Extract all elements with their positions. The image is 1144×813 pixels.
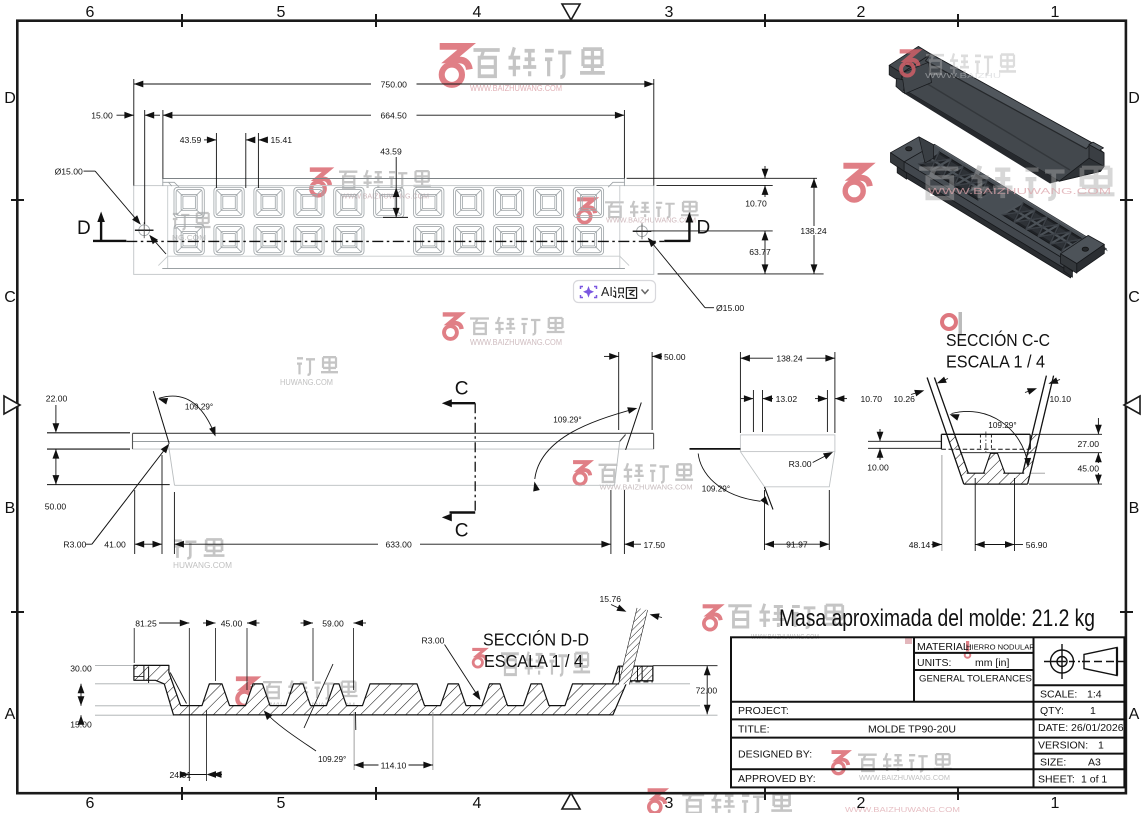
svg-text:Masa aproximada del molde: 21.: Masa aproximada del molde: 21.2 kg [779,605,1095,632]
svg-text:A: A [1129,706,1140,723]
svg-text:15.76: 15.76 [600,594,622,604]
svg-text:22.00: 22.00 [46,394,68,404]
svg-text:HUWANG.COM: HUWANG.COM [173,561,232,570]
svg-text:63.77: 63.77 [749,247,771,257]
svg-text:5: 5 [277,4,286,21]
svg-text:WWW.BAIZHUWANG.COM: WWW.BAIZHUWANG.COM [470,84,562,93]
svg-text:2: 2 [857,795,866,812]
svg-text:C: C [455,378,469,399]
svg-text:WWW.BAIZHUWANG.COM: WWW.BAIZHUWANG.COM [859,773,950,782]
svg-text:A3: A3 [1088,757,1101,769]
svg-text:45.00: 45.00 [221,618,243,628]
svg-text:R3.00: R3.00 [63,540,86,550]
svg-text:138.24: 138.24 [800,226,827,236]
svg-text:VERSION:: VERSION: [1038,740,1088,752]
svg-text:1: 1 [1098,740,1104,752]
svg-text:MOLDE TP90-20U: MOLDE TP90-20U [868,724,956,736]
svg-text:138.24: 138.24 [776,353,803,363]
svg-text:13.02: 13.02 [776,394,798,404]
svg-text:109.29°: 109.29° [185,403,213,412]
svg-text:27.00: 27.00 [1077,439,1099,449]
svg-text:750.00: 750.00 [381,79,408,89]
svg-text:D: D [4,90,16,107]
svg-text:D: D [1128,90,1140,107]
svg-text:DATE:: DATE: [1038,722,1068,734]
svg-text:ESCALA 1 / 4: ESCALA 1 / 4 [946,352,1045,372]
svg-text:D: D [697,218,711,239]
svg-text:D: D [77,218,91,239]
svg-text:1: 1 [1051,795,1060,812]
svg-text:1: 1 [1090,705,1096,717]
svg-text:6: 6 [86,4,95,21]
svg-text:3: 3 [665,4,674,21]
svg-text:15.00: 15.00 [70,720,92,730]
svg-text:4: 4 [473,795,482,812]
svg-text:10.70: 10.70 [745,198,767,208]
svg-text:109.29°: 109.29° [553,415,581,424]
svg-text:26/01/2026: 26/01/2026 [1071,722,1124,734]
svg-text:10.26: 10.26 [893,394,915,404]
svg-text:72.00: 72.00 [696,686,718,696]
svg-text:91.97: 91.97 [786,540,808,550]
svg-text:A: A [5,706,16,723]
svg-text:48.14: 48.14 [909,540,931,550]
svg-text:ESCALA 1 / 4: ESCALA 1 / 4 [484,651,583,671]
svg-text:HUWANG.COM: HUWANG.COM [280,378,333,387]
svg-text:2: 2 [857,4,866,21]
svg-text:43.59: 43.59 [380,146,402,156]
svg-text:WWW.BAIZHUWANG.COM: WWW.BAIZHUWANG.COM [928,186,1111,196]
svg-text:41.00: 41.00 [104,540,126,550]
svg-text:1 of 1: 1 of 1 [1081,774,1107,786]
svg-text:WWW.BAIZHUWANG.COM: WWW.BAIZHUWANG.COM [470,338,562,347]
svg-text:MATERIAL:: MATERIAL: [917,641,972,653]
svg-text:R3.00: R3.00 [789,459,812,469]
svg-text:APPROVED BY:: APPROVED BY: [738,773,816,785]
svg-text:NG.COM: NG.COM [172,233,206,242]
svg-text:WWW.BAIZHUWANG.COM: WWW.BAIZHUWANG.COM [600,483,693,492]
svg-text:SCALE:: SCALE: [1040,689,1077,701]
svg-text:50.00: 50.00 [664,352,686,362]
svg-text:30.00: 30.00 [70,664,92,674]
svg-text:15.41: 15.41 [271,135,293,145]
svg-text:SHEET:: SHEET: [1038,774,1075,786]
svg-text:664.50: 664.50 [380,111,407,121]
svg-text:HIERRO NODULAR: HIERRO NODULAR [966,643,1035,652]
svg-text:QTY:: QTY: [1040,705,1064,717]
svg-text:81.25: 81.25 [135,618,157,628]
svg-text:Ø15.00: Ø15.00 [716,303,744,313]
svg-text:5: 5 [277,795,286,812]
svg-text:1:4: 1:4 [1087,689,1102,701]
svg-text:10.00: 10.00 [867,463,889,473]
svg-text:B: B [1129,500,1140,517]
svg-text:UNITS:: UNITS: [917,657,951,669]
svg-text:10.70: 10.70 [861,394,883,404]
svg-text:109.29°: 109.29° [702,485,730,494]
svg-text:24.01: 24.01 [170,770,192,780]
svg-text:17.50: 17.50 [644,540,666,550]
svg-text:DESIGNED BY:: DESIGNED BY: [738,749,812,761]
svg-text:45.00: 45.00 [1077,464,1099,474]
svg-text:114.10: 114.10 [381,761,407,771]
svg-text:109.29°: 109.29° [318,755,346,764]
svg-text:mm [in]: mm [in] [975,657,1010,669]
svg-text:B: B [5,500,16,517]
svg-text:R3.00: R3.00 [422,635,445,645]
svg-text:C: C [4,289,16,306]
svg-text:50.00: 50.00 [45,502,67,512]
svg-text:633.00: 633.00 [385,540,412,550]
svg-text:SIZE:: SIZE: [1040,757,1066,769]
svg-text:SECCIÓN D-D: SECCIÓN D-D [483,629,589,650]
svg-text:C: C [1128,289,1140,306]
svg-text:1: 1 [1051,4,1060,21]
svg-text:WWW.BAIZHU: WWW.BAIZHU [925,73,1001,80]
svg-text:C: C [455,521,469,542]
svg-text:Ø15.00: Ø15.00 [55,167,83,177]
svg-text:59.00: 59.00 [322,618,344,628]
svg-text:43.59: 43.59 [180,135,202,145]
svg-text:4: 4 [473,4,482,21]
svg-text:PROJECT:: PROJECT: [738,705,789,717]
svg-text:10.10: 10.10 [1050,394,1072,404]
svg-text:AI: AI [601,285,613,299]
svg-text:3: 3 [665,795,674,812]
svg-text:6: 6 [86,795,95,812]
svg-text:TITLE:: TITLE: [738,724,770,736]
svg-text:SECCIÓN C-C: SECCIÓN C-C [946,329,1050,350]
svg-text:GENERAL TOLERANCES:: GENERAL TOLERANCES: [919,674,1035,685]
svg-text:15.00: 15.00 [91,110,113,120]
svg-text:56.90: 56.90 [1026,540,1048,550]
